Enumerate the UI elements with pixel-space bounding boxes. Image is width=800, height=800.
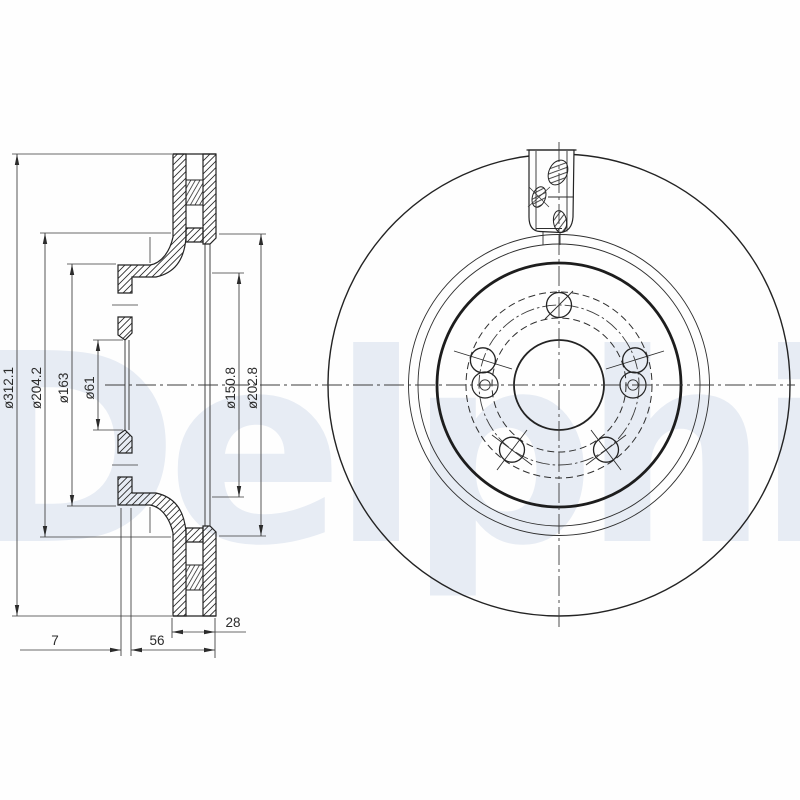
hub-wall-lower-segment — [118, 430, 132, 453]
brake-disc-technical-drawing: ø312.1 ø204.2 ø163 ø61 ø150.8 ø202.8 7 5… — [0, 0, 800, 800]
vent-rim-top — [186, 228, 203, 242]
dim-hat-diameter: ø163 — [56, 373, 71, 404]
section-view: ø312.1 ø204.2 ø163 ø61 ø150.8 ø202.8 7 5… — [1, 154, 266, 658]
bore-silhouette — [125, 340, 129, 430]
mounting-tab — [527, 150, 577, 245]
vent-rim-bottom — [186, 528, 203, 542]
vent-vane-top — [186, 180, 203, 205]
hub-wall-upper-segment — [118, 317, 132, 340]
inboard-plate-and-hat-top — [118, 154, 186, 293]
dim-hat-offset: 7 — [51, 633, 59, 648]
vent-vane-bottom — [186, 565, 203, 590]
dim-centre-bore: ø61 — [82, 376, 97, 399]
outboard-plate-bottom — [203, 526, 216, 616]
inboard-plate-and-hat-bottom — [118, 477, 186, 616]
dim-total-height: 56 — [149, 633, 164, 648]
dim-outer-diameter: ø312.1 — [1, 367, 16, 409]
drawing-page: Delphi — [0, 0, 800, 800]
dim-inner-friction-diameter: ø204.2 — [29, 367, 44, 409]
dim-outer-friction-diameter: ø202.8 — [245, 367, 260, 409]
dim-pilot-diameter: ø150.8 — [223, 367, 238, 409]
outboard-plate-top — [203, 154, 216, 244]
dim-disc-thickness: 28 — [225, 615, 240, 630]
bolt-holes — [454, 291, 664, 470]
